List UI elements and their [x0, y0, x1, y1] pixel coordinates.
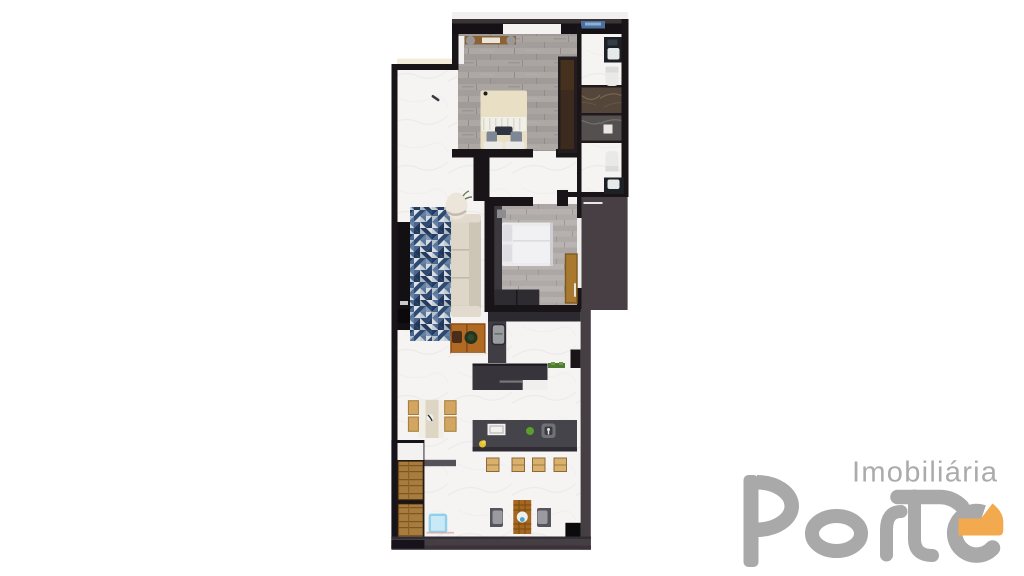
svg-text:Imobiliária: Imobiliária	[852, 457, 998, 489]
